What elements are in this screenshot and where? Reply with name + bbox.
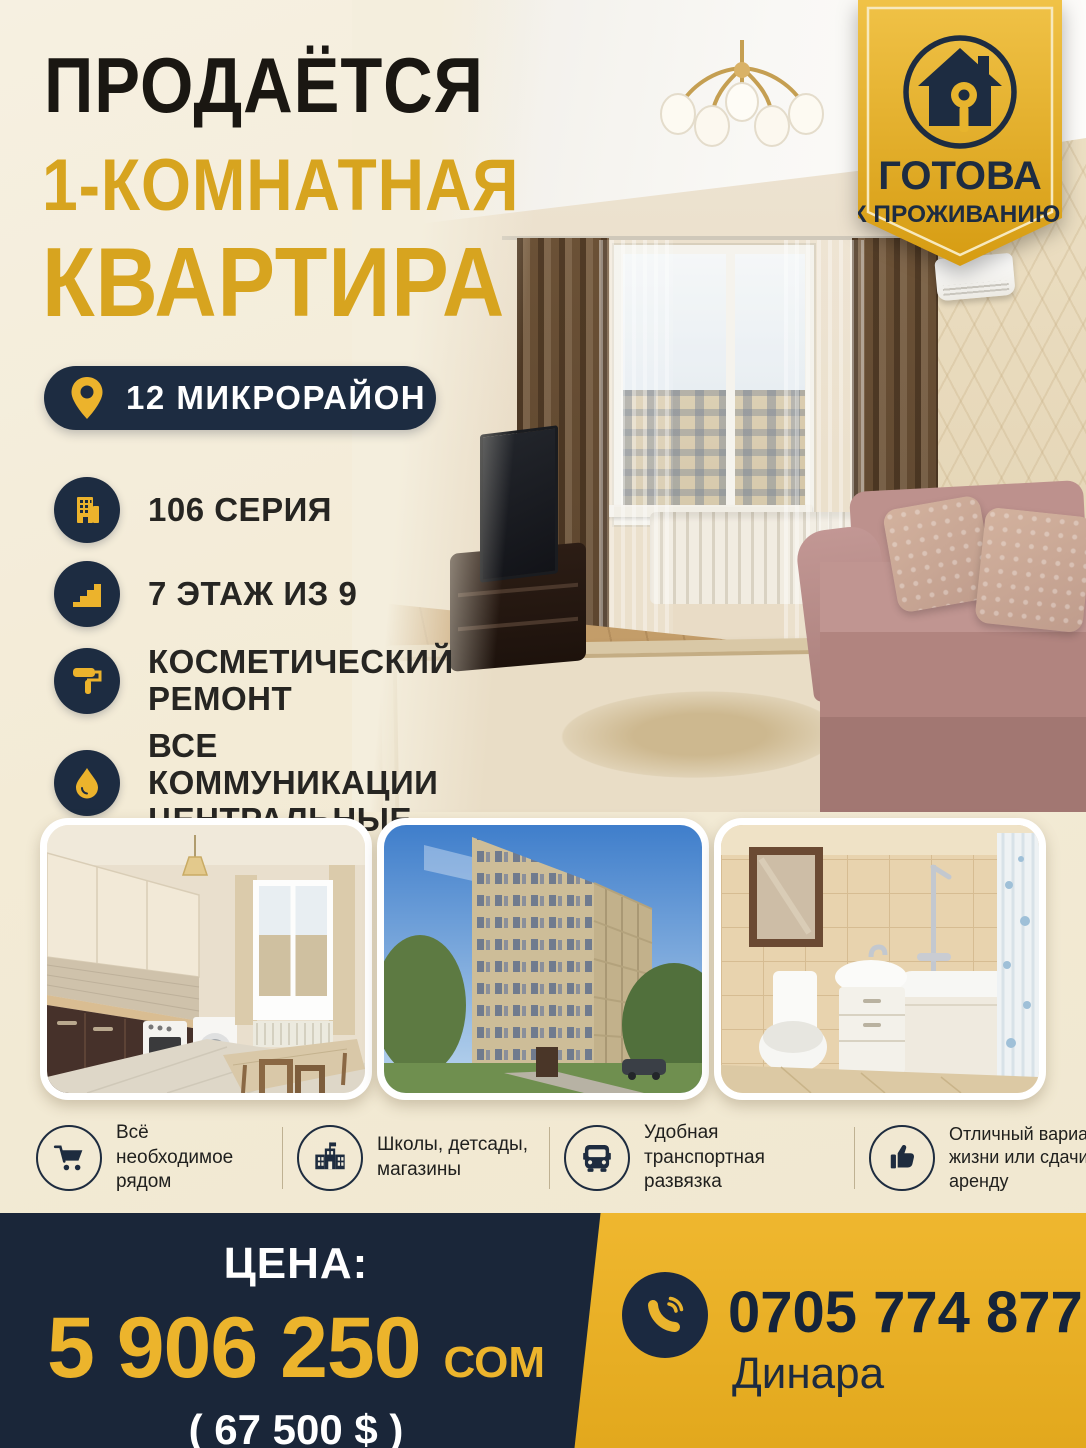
thumbs-up-icon bbox=[869, 1125, 935, 1191]
highlight-text: Удобная транспортная развязка bbox=[644, 1121, 840, 1195]
kitchen-photo bbox=[47, 825, 365, 1093]
highlight-text: Всё необходимое рядом bbox=[116, 1121, 268, 1195]
feature-text: КОСМЕТИЧЕСКИЙ РЕМОНТ bbox=[148, 644, 498, 718]
ribbon-line2: К ПРОЖИВАНИЮ! bbox=[858, 201, 1062, 228]
poster-title-line2: 1-КОМНАТНАЯ bbox=[42, 144, 584, 227]
highlight-shops: Всё необходимое рядом bbox=[36, 1121, 268, 1195]
price-amount: 5 906 250 СОМ bbox=[6, 1299, 586, 1398]
feature-series: 106 СЕРИЯ bbox=[54, 477, 498, 543]
school-icon bbox=[297, 1125, 363, 1191]
real-estate-poster: ПРОДАЁТСЯ 1-КОМНАТНАЯ КВАРТИРА 12 МИКРОР… bbox=[0, 0, 1086, 1448]
building-photo-card bbox=[377, 818, 709, 1100]
highlight-text: Отличный вариант для жизни или сдачи в а… bbox=[949, 1123, 1086, 1193]
feature-floor: 7 ЭТАЖ ИЗ 9 bbox=[54, 561, 498, 627]
location-badge: 12 МИКРОРАЙОН bbox=[44, 366, 436, 430]
price-currency: СОМ bbox=[443, 1338, 545, 1387]
poster-title-line3: КВАРТИРА bbox=[42, 226, 568, 339]
price-usd: ( 67 500 $ ) bbox=[6, 1406, 586, 1448]
kitchen-photo-card bbox=[40, 818, 372, 1100]
highlight-schools: Школы, детсады, магазины bbox=[297, 1125, 535, 1191]
highlight-transport: Удобная транспортная развязка bbox=[564, 1121, 840, 1195]
phone-number: 0705 774 877 bbox=[728, 1279, 1083, 1346]
divider bbox=[282, 1127, 283, 1189]
feature-text: 7 ЭТАЖ ИЗ 9 bbox=[148, 576, 498, 613]
phone-icon bbox=[622, 1272, 708, 1358]
cart-icon bbox=[36, 1125, 102, 1191]
price-block: ЦЕНА: 5 906 250 СОМ ( 67 500 $ ) bbox=[6, 1239, 586, 1448]
stairs-icon bbox=[54, 561, 120, 627]
paint-roller-icon bbox=[54, 648, 120, 714]
highlight-text: Школы, детсады, магазины bbox=[377, 1133, 535, 1182]
price-value: 5 906 250 bbox=[47, 1300, 421, 1396]
highlights-row: Всё необходимое рядом bbox=[36, 1116, 1050, 1200]
bus-icon bbox=[564, 1125, 630, 1191]
building-icon bbox=[54, 477, 120, 543]
feature-text: 106 СЕРИЯ bbox=[148, 492, 498, 529]
building-exterior-photo bbox=[384, 825, 702, 1093]
divider bbox=[549, 1127, 550, 1189]
highlight-investment: Отличный вариант для жизни или сдачи в а… bbox=[869, 1123, 1086, 1193]
location-label: 12 МИКРОРАЙОН bbox=[126, 379, 426, 417]
bottom-band: ЦЕНА: 5 906 250 СОМ ( 67 500 $ ) 0705 77… bbox=[0, 1213, 1086, 1448]
poster-title-line1: ПРОДАЁТСЯ bbox=[44, 40, 544, 131]
contact-name: Динара bbox=[732, 1349, 884, 1399]
water-drop-icon bbox=[54, 750, 120, 816]
ready-ribbon: ГОТОВА К ПРОЖИВАНИЮ! bbox=[858, 0, 1062, 272]
price-label: ЦЕНА: bbox=[6, 1239, 586, 1289]
bathroom-photo-card bbox=[714, 818, 1046, 1100]
divider bbox=[854, 1127, 855, 1189]
bathroom-photo bbox=[721, 825, 1039, 1093]
feature-renovation: КОСМЕТИЧЕСКИЙ РЕМОНТ bbox=[54, 644, 498, 718]
map-pin-icon bbox=[70, 376, 104, 420]
photo-cards bbox=[40, 818, 1046, 1100]
ribbon-line1: ГОТОВА bbox=[878, 154, 1042, 198]
